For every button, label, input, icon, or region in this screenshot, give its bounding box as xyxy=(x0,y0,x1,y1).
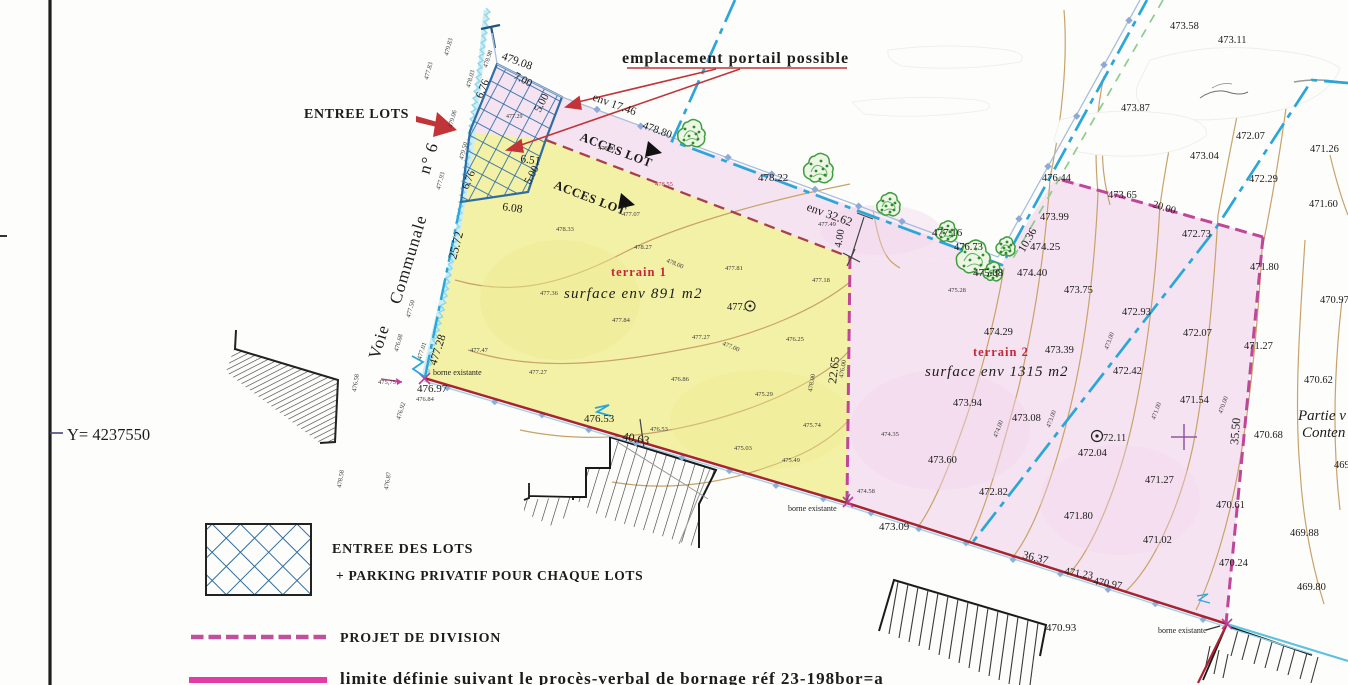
svg-text:478.22: 478.22 xyxy=(758,172,788,184)
svg-text:475,75: 475,75 xyxy=(378,379,396,386)
svg-text:473.87: 473.87 xyxy=(1121,103,1150,114)
svg-text:473.39: 473.39 xyxy=(1045,345,1074,356)
svg-text:473.75: 473.75 xyxy=(1064,285,1093,296)
svg-text:473.65: 473.65 xyxy=(1108,190,1137,201)
svg-text:477.81: 477.81 xyxy=(725,265,743,272)
svg-text:476.84: 476.84 xyxy=(416,396,435,403)
svg-text:477.27: 477.27 xyxy=(529,369,548,376)
svg-text:472.73: 472.73 xyxy=(1182,229,1211,240)
svg-text:478.01: 478.01 xyxy=(598,145,616,152)
svg-text:471.60: 471.60 xyxy=(1309,199,1338,210)
svg-text:terrain 2: terrain 2 xyxy=(973,345,1029,359)
svg-text:477.27: 477.27 xyxy=(692,334,711,341)
svg-text:477.47: 477.47 xyxy=(470,347,489,354)
svg-text:471.02: 471.02 xyxy=(1143,535,1172,546)
svg-text:478.55: 478.55 xyxy=(655,181,673,188)
svg-text:470.61: 470.61 xyxy=(1216,500,1245,511)
svg-text:476.44: 476.44 xyxy=(1042,173,1072,184)
svg-text:474.40: 474.40 xyxy=(1017,267,1048,279)
svg-text:Y= 4237550: Y= 4237550 xyxy=(67,425,150,444)
svg-text:477.16: 477.16 xyxy=(932,227,963,239)
svg-text:476.97: 476.97 xyxy=(417,383,448,395)
svg-text:472.07: 472.07 xyxy=(1183,328,1212,339)
svg-text:474.58: 474.58 xyxy=(857,488,875,495)
svg-text:72.11: 72.11 xyxy=(1103,433,1126,444)
svg-text:474.35: 474.35 xyxy=(881,431,899,438)
svg-text:borne existante: borne existante xyxy=(1158,626,1207,635)
svg-text:surface env 1315 m2: surface env 1315 m2 xyxy=(925,364,1069,380)
svg-text:473.08: 473.08 xyxy=(1012,413,1041,424)
svg-text:emplacement portail possible: emplacement portail possible xyxy=(622,50,849,67)
svg-text:472.42: 472.42 xyxy=(1113,366,1142,377)
svg-text:473.99: 473.99 xyxy=(1040,212,1069,223)
svg-text:477.49: 477.49 xyxy=(818,221,836,228)
svg-text:474.29: 474.29 xyxy=(984,327,1013,338)
svg-text:Partie v: Partie v xyxy=(1297,408,1346,424)
svg-text:471.80: 471.80 xyxy=(1250,262,1279,273)
svg-text:475.74: 475.74 xyxy=(803,422,822,429)
svg-text:terrain 1: terrain 1 xyxy=(611,265,667,279)
svg-text:470.93: 470.93 xyxy=(1046,622,1077,634)
svg-text:+ PARKING PRIVATIF POUR CHAQUE: + PARKING PRIVATIF POUR CHAQUE LOTS xyxy=(336,568,643,583)
svg-text:surface env 891 m2: surface env 891 m2 xyxy=(564,286,703,302)
svg-text:472.04: 472.04 xyxy=(1078,448,1108,459)
svg-text:476.53: 476.53 xyxy=(584,413,615,425)
svg-text:477.: 477. xyxy=(727,302,745,313)
svg-text:470.24: 470.24 xyxy=(1219,558,1249,569)
svg-text:471.54: 471.54 xyxy=(1180,395,1210,406)
svg-text:472.29: 472.29 xyxy=(1249,174,1278,185)
svg-text:477.84: 477.84 xyxy=(612,317,631,324)
svg-text:469.80: 469.80 xyxy=(1297,582,1326,593)
svg-text:ENTREE LOTS: ENTREE LOTS xyxy=(304,107,409,122)
svg-text:Conten: Conten xyxy=(1302,425,1345,441)
svg-text:475.49: 475.49 xyxy=(782,457,800,464)
svg-text:473.58: 473.58 xyxy=(1170,21,1199,32)
svg-text:473.60: 473.60 xyxy=(928,455,957,466)
svg-text:475.28: 475.28 xyxy=(948,287,966,294)
svg-text:473.94: 473.94 xyxy=(953,398,983,409)
svg-text:475.29: 475.29 xyxy=(755,391,773,398)
svg-text:476.86: 476.86 xyxy=(671,376,690,383)
svg-text:472.07: 472.07 xyxy=(1236,131,1265,142)
svg-text:borne existante: borne existante xyxy=(788,504,837,513)
svg-text:476.53: 476.53 xyxy=(650,426,668,433)
svg-text:470.68: 470.68 xyxy=(1254,430,1283,441)
svg-text:PROJET DE DIVISION: PROJET DE DIVISION xyxy=(340,631,501,646)
svg-text:477.36: 477.36 xyxy=(540,290,559,297)
svg-text:472.82: 472.82 xyxy=(979,487,1008,498)
svg-text:469: 469 xyxy=(1334,460,1348,471)
svg-text:469.88: 469.88 xyxy=(1290,528,1319,539)
svg-text:470.62: 470.62 xyxy=(1304,375,1333,386)
svg-text:470.97: 470.97 xyxy=(1320,295,1348,306)
svg-text:472.93: 472.93 xyxy=(1122,307,1151,318)
svg-text:471.26: 471.26 xyxy=(1310,144,1339,155)
svg-text:471.80: 471.80 xyxy=(1064,511,1093,522)
svg-text:471.27: 471.27 xyxy=(1145,475,1174,486)
svg-text:477.18: 477.18 xyxy=(812,277,830,284)
svg-text:limite définie suivant le proc: limite définie suivant le procès-verbal … xyxy=(340,669,884,685)
svg-text:478.27: 478.27 xyxy=(634,244,653,251)
svg-text:476.25: 476.25 xyxy=(786,336,804,343)
svg-text:475.08: 475.08 xyxy=(973,267,1004,279)
svg-text:ENTREE DES LOTS: ENTREE DES LOTS xyxy=(332,542,473,557)
svg-text:477.07: 477.07 xyxy=(622,211,641,218)
svg-text:471.27: 471.27 xyxy=(1244,341,1273,352)
svg-text:473.11: 473.11 xyxy=(1218,35,1247,46)
svg-text:475.03: 475.03 xyxy=(734,445,752,452)
svg-text:473.04: 473.04 xyxy=(1190,151,1220,162)
svg-text:35.50: 35.50 xyxy=(1227,417,1243,445)
svg-text:476.73: 476.73 xyxy=(954,242,983,253)
svg-text:478.33: 478.33 xyxy=(556,226,574,233)
svg-text:474.25: 474.25 xyxy=(1030,241,1061,253)
svg-text:477.29: 477.29 xyxy=(506,114,523,120)
svg-text:473.09: 473.09 xyxy=(879,521,910,533)
svg-text:borne existante: borne existante xyxy=(433,368,482,377)
